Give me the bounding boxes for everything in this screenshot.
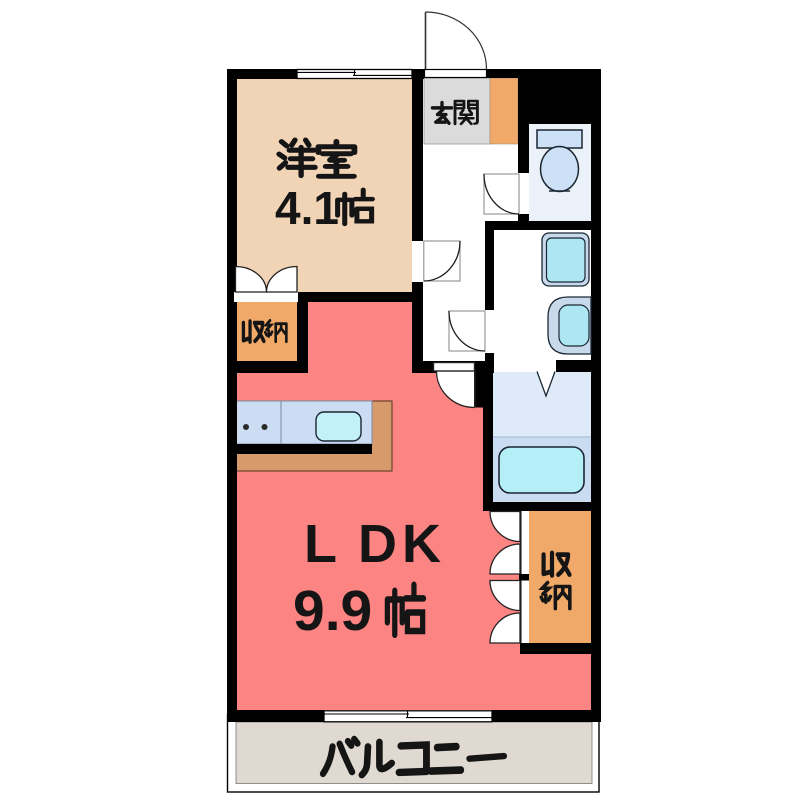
svg-text:9.9: 9.9 [293,579,372,643]
svg-text:K: K [402,514,441,574]
svg-text:D: D [358,514,397,574]
svg-text:L: L [304,514,337,574]
svg-text:4.1: 4.1 [275,182,339,234]
